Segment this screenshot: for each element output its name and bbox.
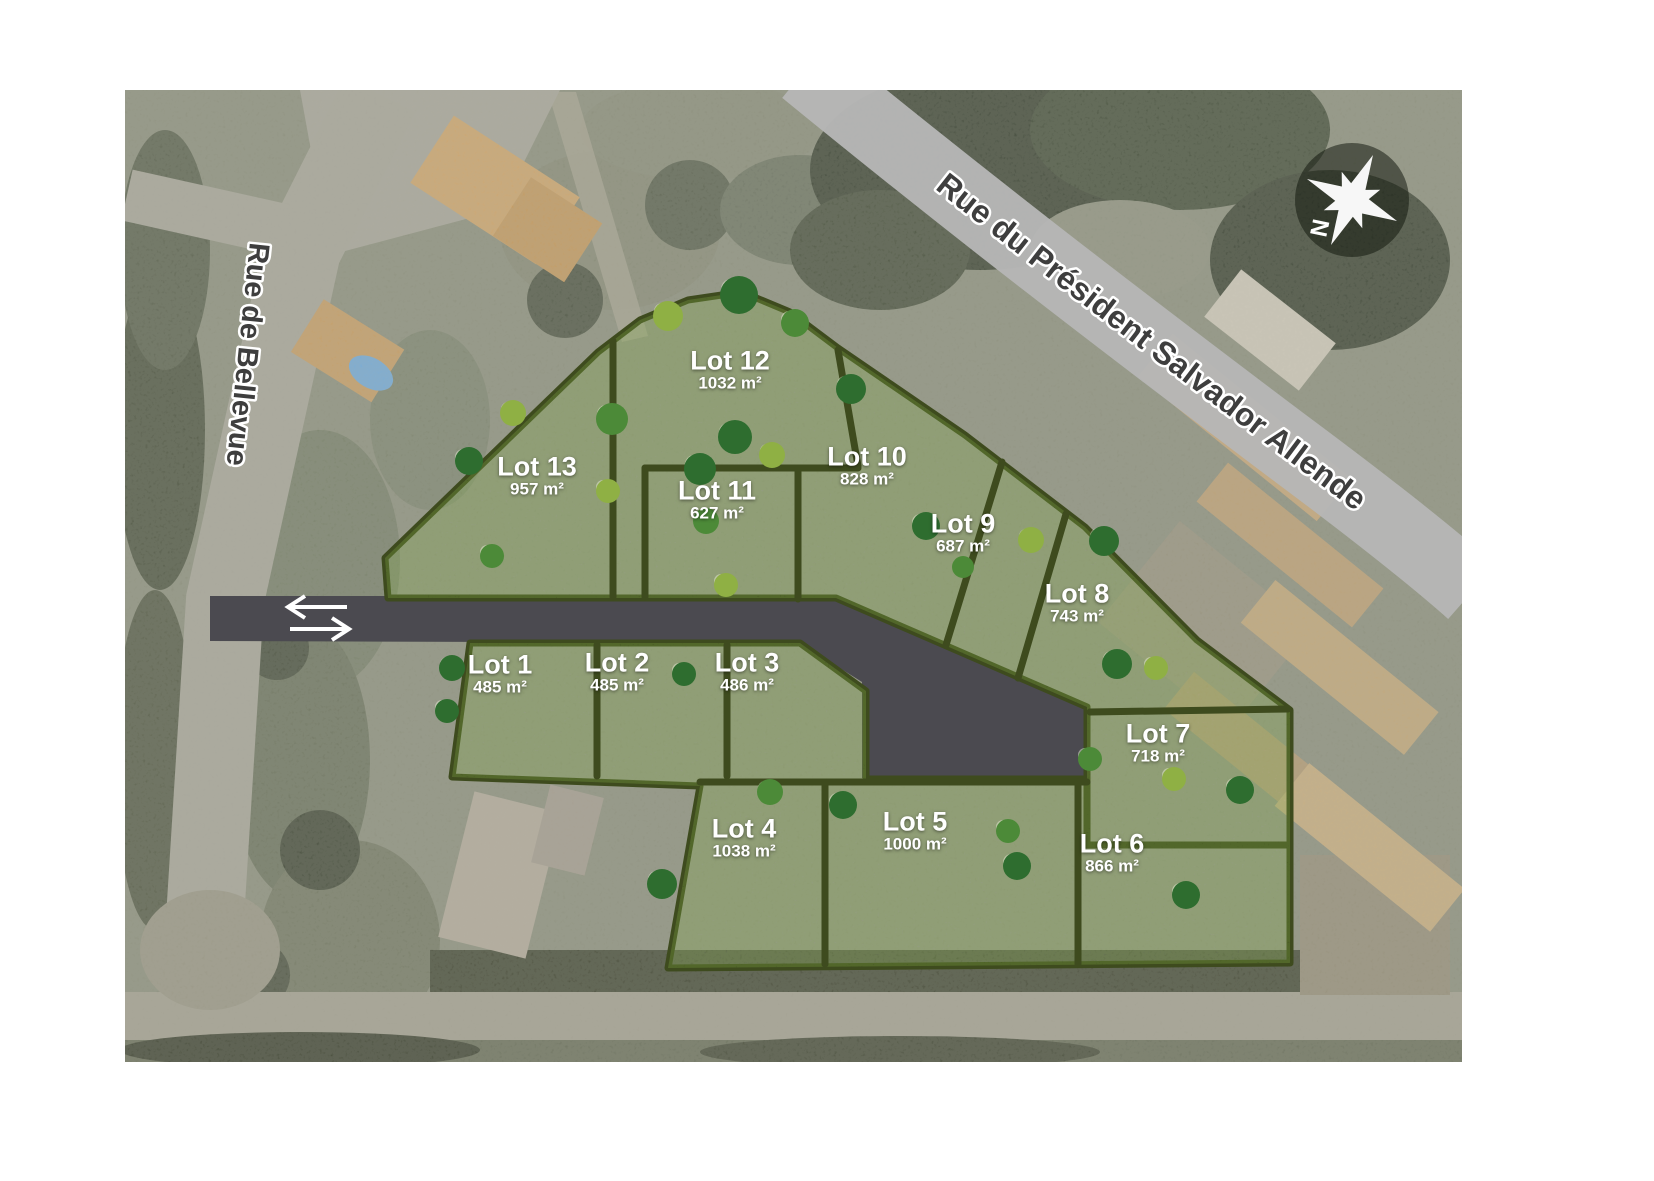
lot-area: 485 m² <box>468 679 533 697</box>
lot-label-6[interactable]: Lot 6866 m² <box>1080 830 1145 876</box>
lot-area: 743 m² <box>1045 608 1110 626</box>
tree-icon <box>1226 776 1254 804</box>
tree-icon <box>996 819 1020 843</box>
hedge-line <box>1090 709 1288 712</box>
lot-label-13[interactable]: Lot 13957 m² <box>497 453 577 499</box>
lot-area: 485 m² <box>585 677 650 695</box>
tree-icon <box>718 420 752 454</box>
lot-name: Lot 6 <box>1080 830 1145 858</box>
lot-label-2[interactable]: Lot 2485 m² <box>585 649 650 695</box>
lot-name: Lot 5 <box>883 808 948 836</box>
tree-icon <box>829 791 857 819</box>
lot-name: Lot 2 <box>585 649 650 677</box>
tree-icon <box>647 869 677 899</box>
lot-area: 627 m² <box>678 505 756 523</box>
lot-label-8[interactable]: Lot 8743 m² <box>1045 580 1110 626</box>
tree-icon <box>1144 656 1168 680</box>
tree-icon <box>1089 526 1119 556</box>
lot-label-9[interactable]: Lot 9687 m² <box>931 510 996 556</box>
tree-icon <box>500 400 526 426</box>
tree-icon <box>596 403 628 435</box>
tree-icon <box>1018 527 1044 553</box>
compass-rose: N <box>1295 143 1409 257</box>
lot-name: Lot 11 <box>678 477 756 505</box>
lot-name: Lot 7 <box>1126 720 1191 748</box>
lot-area: 957 m² <box>497 481 577 499</box>
lot-label-1[interactable]: Lot 1485 m² <box>468 651 533 697</box>
lot-name: Lot 13 <box>497 453 577 481</box>
lot-area: 1032 m² <box>690 375 770 393</box>
tree-icon <box>714 573 738 597</box>
tree-icon <box>1102 649 1132 679</box>
lot-area: 486 m² <box>715 677 780 695</box>
lot-area: 866 m² <box>1080 858 1145 876</box>
tree-icon <box>1162 767 1186 791</box>
lot-name: Lot 10 <box>827 443 907 471</box>
tree-icon <box>952 556 974 578</box>
lot-name: Lot 8 <box>1045 580 1110 608</box>
tree-icon <box>439 655 465 681</box>
lot-label-12[interactable]: Lot 121032 m² <box>690 347 770 393</box>
tree-icon <box>781 309 809 337</box>
lot-label-5[interactable]: Lot 51000 m² <box>883 808 948 854</box>
lot-area: 828 m² <box>827 471 907 489</box>
lot-label-10[interactable]: Lot 10828 m² <box>827 443 907 489</box>
lot-label-11[interactable]: Lot 11627 m² <box>678 477 756 523</box>
tree-icon <box>759 442 785 468</box>
lot-label-3[interactable]: Lot 3486 m² <box>715 649 780 695</box>
tree-icon <box>720 276 758 314</box>
lot-label-4[interactable]: Lot 41038 m² <box>712 815 777 861</box>
lot-area: 687 m² <box>931 538 996 556</box>
site-plan-map: Rue du Président Salvador Allende Rue de… <box>0 0 1654 1181</box>
tree-icon <box>1172 881 1200 909</box>
tree-icon <box>596 479 620 503</box>
tree-icon <box>1003 852 1031 880</box>
lot-name: Lot 12 <box>690 347 770 375</box>
tree-icon <box>435 699 459 723</box>
lot-name: Lot 4 <box>712 815 777 843</box>
tree-icon <box>653 301 683 331</box>
lot-name: Lot 9 <box>931 510 996 538</box>
subdivision-plan-page: Rue du Président Salvador Allende Rue de… <box>0 0 1654 1181</box>
lot-area: 1000 m² <box>883 836 948 854</box>
tree-icon <box>836 374 866 404</box>
tree-icon <box>672 662 696 686</box>
lot-label-7[interactable]: Lot 7718 m² <box>1126 720 1191 766</box>
lot-name: Lot 1 <box>468 651 533 679</box>
lot-area: 718 m² <box>1126 748 1191 766</box>
tree-icon <box>480 544 504 568</box>
lot-name: Lot 3 <box>715 649 780 677</box>
lot-area: 1038 m² <box>712 843 777 861</box>
tree-icon <box>1078 747 1102 771</box>
tree-icon <box>455 447 483 475</box>
tree-icon <box>757 779 783 805</box>
